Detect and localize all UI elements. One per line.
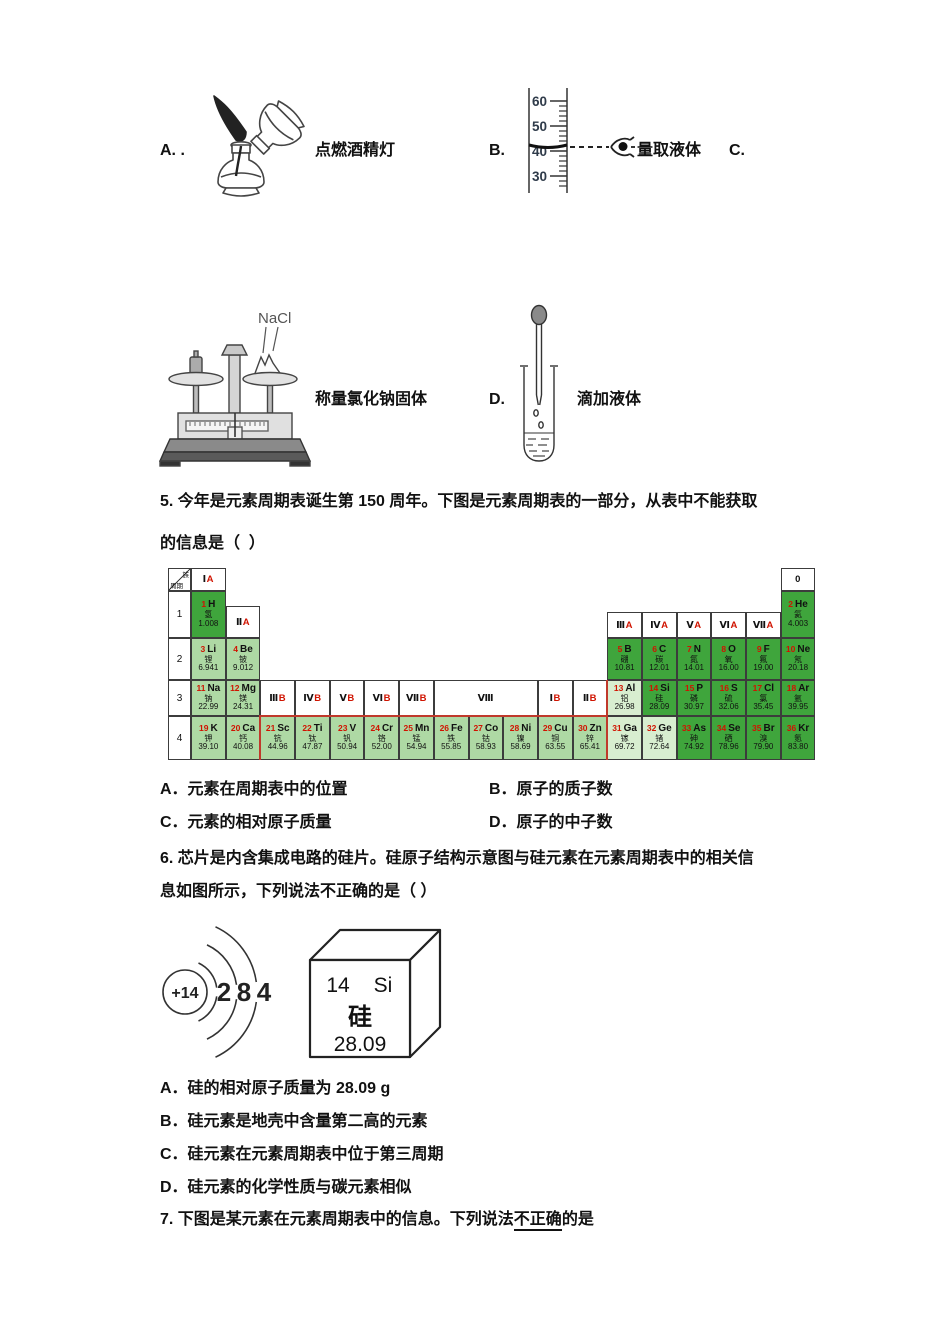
element-cell-Sc: 21Sc钪44.96 [260,716,295,760]
element-cell-Ge: 32Ge锗72.64 [642,716,677,760]
period-label-2: 2 [168,638,191,680]
element-cell-Ne: 10Ne氖20.18 [781,638,816,680]
element-cell-Se: 34Se硒78.96 [711,716,746,760]
nucleus-charge: +14 [171,985,198,1002]
element-cell-Br: 35Br溴79.90 [746,716,781,760]
lower-lamp [218,142,264,196]
element-cell-Ga: 31Ga镓69.72 [607,716,642,760]
scale-50: 50 [532,119,547,134]
option-c-label: C. [729,140,745,162]
q6-stem-line2: 息如图所示，下列说法不正确的是（ ） [160,881,436,903]
silicon-atom-diagram: +14 2 8 4 [158,918,323,1066]
dropper-caption: 滴加液体 [577,389,641,411]
si-name: 硅 [348,1004,372,1031]
graduated-cylinder-figure: 60 50 40 30 [523,88,635,194]
element-cell-He: 2He氦4.003 [781,591,816,638]
q6-option-a: A．硅的相对原子质量为 28.09 g [160,1078,390,1100]
q6-option-c: C．硅元素在元素周期表中位于第三周期 [160,1144,444,1166]
nacl-label: NaCl [258,310,291,327]
shell-2-electrons: 8 [237,977,251,1007]
q5-stem-line2: 的信息是（ ） [160,533,265,555]
element-cell-As: 33As砷74.92 [677,716,712,760]
group-header-ⅡA: ⅡA [226,606,261,638]
exam-page: A. . 点燃酒精灯 B. [0,0,950,1344]
element-cell-Fe: 26Fe铁55.85 [434,716,469,760]
right-pan [243,373,297,386]
flame [214,96,246,141]
element-cell-Ti: 22Ti钛47.87 [295,716,330,760]
si-symbol: Si [374,974,393,997]
element-cell-Mn: 25Mn锰54.94 [399,716,434,760]
rider-scale [186,421,268,431]
corner-cell: 族周期 [168,568,191,591]
element-cell-Co: 27Co钴58.93 [469,716,504,760]
element-cell-Kr: 36Kr氪83.80 [781,716,816,760]
test-tube [524,367,554,461]
element-cell-Cu: 29Cu铜63.55 [538,716,573,760]
alcohol-lamp-figure [186,86,312,198]
periodic-table-figure: 族周期1234ⅠA0ⅡAⅢAⅣAⅤAⅥAⅦAⅢBⅣBⅤBⅥBⅦBⅧⅠBⅡB1H氢… [168,568,816,760]
element-cell-H: 1H氢1.008 [191,591,226,638]
element-cell-V: 23V钒50.94 [330,716,365,760]
period-label-4: 4 [168,716,191,760]
balance-figure: NaCl [158,305,312,467]
group-header-ⅡB: ⅡB [573,680,608,716]
q5-option-b: B．原子的质子数 [489,779,613,801]
element-cell-K: 19K钾39.10 [191,716,226,760]
element-cell-Mg: 12Mg镁24.31 [226,680,261,716]
element-cell-Ca: 20Ca钙40.08 [226,716,261,760]
element-cell-S: 16S硫32.06 [711,680,746,716]
red-line-left [259,715,261,760]
group-header-ⅢB: ⅢB [260,680,295,716]
element-cell-Cl: 17Cl氯35.45 [746,680,781,716]
si-atomic-number: 14 [326,974,350,997]
scale-60: 60 [532,94,547,109]
group-header-0: 0 [781,568,816,591]
group-header-ⅥB: ⅥB [364,680,399,716]
group-header-ⅣB: ⅣB [295,680,330,716]
element-cell-P: 15P磷30.97 [677,680,712,716]
dropper-tip [537,395,542,405]
element-cell-Zn: 30Zn锌65.41 [573,716,608,760]
q5-option-c: C．元素的相对原子质量 [160,812,332,834]
q6-option-d: D．硅元素的化学性质与碳元素相似 [160,1177,412,1199]
lamp-caption: 点燃酒精灯 [315,140,395,162]
element-cell-Li: 3Li锂6.941 [191,638,226,680]
left-pan [169,373,223,386]
group-header-ⅢA: ⅢA [607,612,642,638]
q5-stem-line1: 5. 今年是元素周期表诞生第 150 周年。下图是元素周期表的一部分，从表中不能… [160,491,757,513]
cylinder-caption: 量取液体 [637,140,701,162]
group-header-ⅠA: ⅠA [191,568,226,591]
si-mass: 28.09 [334,1033,387,1056]
group-header-ⅥA: ⅥA [711,612,746,638]
tilted-lamp [241,95,310,164]
shell-1-electrons: 2 [217,977,231,1007]
group-header-ⅤA: ⅤA [677,612,712,638]
element-cell-F: 9F氟19.00 [746,638,781,680]
underlined-text: 不正确 [514,1211,562,1231]
q5-option-a: A．元素在周期表中的位置 [160,779,348,801]
group-header-ⅠB: ⅠB [538,680,573,716]
balance-caption: 称量氯化钠固体 [315,389,427,411]
group-header-ⅣA: ⅣA [642,612,677,638]
group-header-ⅤB: ⅤB [330,680,365,716]
period-label-3: 3 [168,680,191,716]
element-cell-B: 5B硼10.81 [607,638,642,680]
element-cell-Be: 4Be铍9.012 [226,638,261,680]
red-line-top [259,715,608,717]
shell-3-electrons: 4 [257,977,272,1007]
element-cell-Cr: 24Cr铬52.00 [364,716,399,760]
dropper-bulb [532,306,547,325]
group-header-ⅦA: ⅦA [746,612,781,638]
option-a-label: A. . [160,140,185,162]
scale-30: 30 [532,169,547,184]
group-header-ⅦB: ⅦB [399,680,434,716]
eye-icon [611,137,635,157]
liquid-level [529,145,567,148]
test-tube-dropper-figure [516,303,562,468]
base-upper [164,439,306,452]
q6-option-b: B．硅元素是地壳中含量第二高的元素 [160,1111,428,1133]
element-cell-N: 7N氮14.01 [677,638,712,680]
pillar [229,355,240,413]
silicon-cell-cube: 14 Si 硅 28.09 [300,922,442,1062]
red-line-right [606,680,608,760]
element-cell-C: 6C碳12.01 [642,638,677,680]
base-lower [160,452,310,461]
element-cell-O: 8O氧16.00 [711,638,746,680]
q7-stem: 7. 下图是某元素在元素周期表中的信息。下列说法不正确的是 [160,1209,594,1231]
period-label-1: 1 [168,591,191,638]
element-cell-Na: 11Na钠22.99 [191,680,226,716]
option-d-label: D. [489,389,505,411]
q6-stem-line1: 6. 芯片是内含集成电路的硅片。硅原子结构示意图与硅元素在元素周期表中的相关信 [160,848,754,870]
option-b-label: B. [489,140,505,162]
element-cell-Si: 14Si硅28.09 [642,680,677,716]
element-cell-Al: 13Al铝26.98 [607,680,642,716]
group-header-Ⅷ: Ⅷ [434,680,538,716]
element-cell-Ar: 18Ar氩39.95 [781,680,816,716]
q5-option-d: D．原子的中子数 [489,812,613,834]
element-cell-Ni: 28Ni镍58.69 [503,716,538,760]
